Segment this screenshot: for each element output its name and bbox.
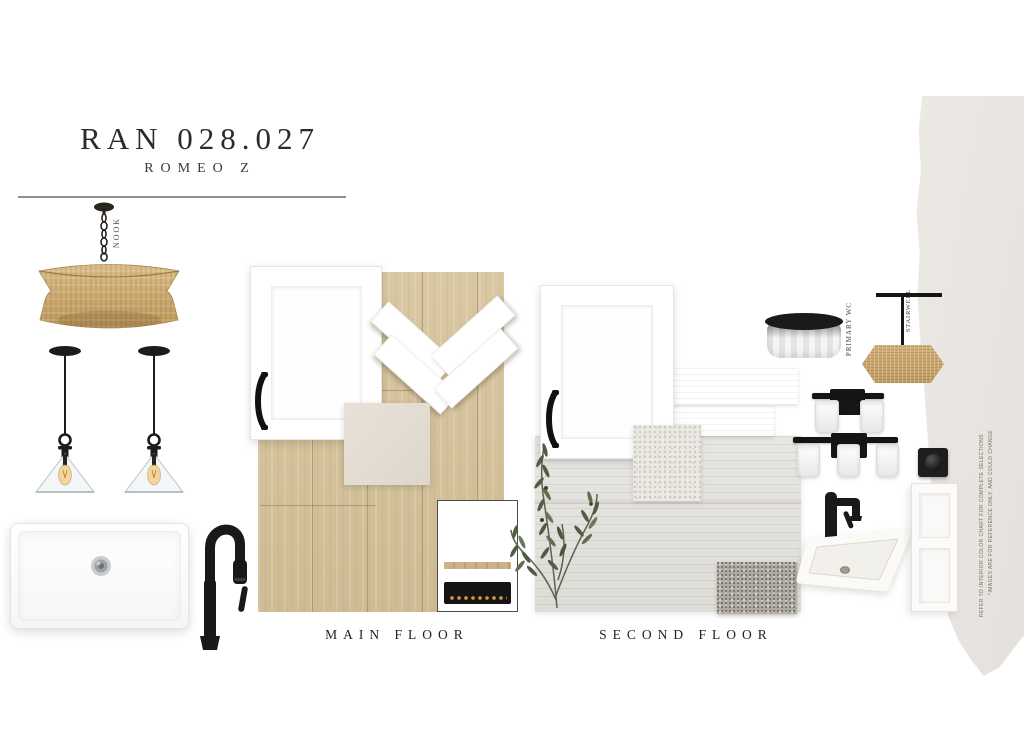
project-title: RAN 028.027 — [60, 121, 340, 157]
header-divider — [18, 196, 346, 198]
vanity-light-shade — [815, 400, 839, 433]
vanity-light-3 — [793, 437, 898, 477]
vanity-light-bar — [812, 393, 884, 399]
vanity-light-bar — [793, 437, 898, 443]
wood-mantel — [444, 562, 512, 569]
speckled-quartz-sample — [633, 425, 701, 501]
room-label-stairwell: STAIRWELL — [905, 289, 912, 332]
hook-knob — [925, 454, 942, 471]
plank-seam — [260, 505, 376, 506]
glass-cone-pendant — [33, 344, 97, 496]
cabinet-door-panel — [561, 305, 653, 439]
flush-mount-cap — [765, 313, 843, 330]
kitchen-faucet — [196, 518, 252, 652]
flames — [448, 594, 506, 600]
pebble-mosaic-sample — [717, 562, 797, 614]
project-subtitle: ROMEO Z — [60, 161, 340, 177]
mood-board: RAN 028.027 ROMEO Z — [0, 0, 1024, 752]
black-robe-hook — [918, 448, 948, 477]
vanity-light-shade — [860, 400, 884, 433]
room-label-nook: NOOK — [112, 217, 121, 248]
door-panel — [919, 493, 950, 538]
second-floor-label: SECOND FLOOR — [586, 627, 786, 643]
flush-mount-light — [765, 313, 845, 361]
cream-quartz-sample — [344, 403, 430, 485]
disclaimer-line-2: REFER TO INTERIOR COLOR CHART FOR COMPLE… — [979, 434, 985, 617]
kitchen-sink — [10, 523, 189, 629]
disclaimer-line-1: *IMAGES ARE FOR REFERENCE ONLY, AND COUL… — [988, 430, 994, 595]
vanity-light-shade — [797, 444, 820, 477]
cabinet-pull-handle — [253, 370, 269, 432]
vanity-light-2 — [812, 393, 884, 431]
cabinet-door-panel — [271, 286, 362, 420]
stairwell-pendant-rod — [901, 295, 904, 347]
vanity-sink — [795, 528, 913, 592]
interior-door — [911, 483, 958, 612]
vanity-light-shade — [837, 444, 860, 477]
sink-drain — [90, 555, 112, 577]
whitewash-plank-tile — [668, 368, 798, 404]
vanity-light-shade — [876, 444, 899, 477]
olive-branch-decor — [505, 438, 613, 610]
room-label-primary: PRIMARY WC — [845, 302, 853, 356]
electric-fireplace — [444, 582, 510, 604]
main-floor-label: MAIN FLOOR — [307, 627, 487, 643]
stairwell-rattan-shade — [862, 345, 944, 383]
rattan-drum-pendant — [34, 254, 184, 338]
door-panel — [919, 548, 950, 603]
glass-cone-pendant — [122, 344, 186, 496]
